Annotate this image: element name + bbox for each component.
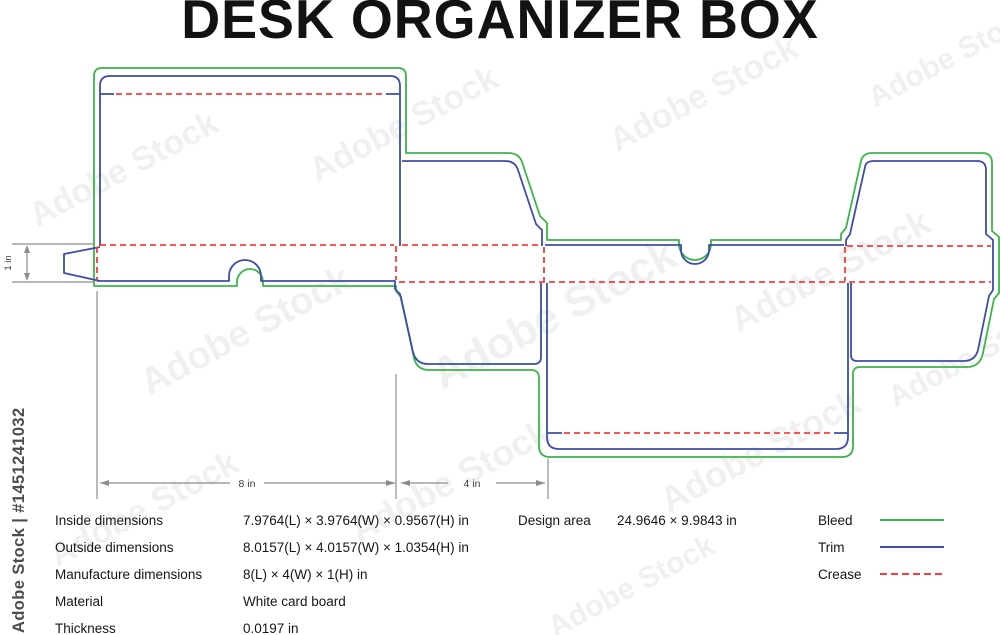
legend-label-trim: Trim xyxy=(818,540,845,555)
stock-id-label: Adobe Stock | #1451241032 xyxy=(10,407,29,633)
spec-value: 7.9764(L) × 3.9764(W) × 0.9567(H) in xyxy=(243,513,469,528)
spec-value: White card board xyxy=(243,594,346,609)
spec-label: Outside dimensions xyxy=(55,540,174,555)
legend-label-bleed: Bleed xyxy=(818,513,853,528)
spec-label: Thickness xyxy=(55,621,116,635)
spec-label: Manufacture dimensions xyxy=(55,567,202,582)
dimension-label-height: 1 in xyxy=(3,255,14,270)
legend-swatch-bleed xyxy=(880,516,944,524)
dimension-lines xyxy=(12,244,548,499)
legend-label-crease: Crease xyxy=(818,567,862,582)
spec-value: 0.0197 in xyxy=(243,621,299,635)
dimension-label-width: 4 in xyxy=(464,478,481,490)
spec-value: 8.0157(L) × 4.0157(W) × 1.0354(H) in xyxy=(243,540,469,555)
legend-swatch-crease xyxy=(880,570,944,578)
spec-label: Material xyxy=(55,594,103,609)
dimension-label-length: 8 in xyxy=(239,478,256,490)
spec-label: Inside dimensions xyxy=(55,513,163,528)
design-area-value: 24.9646 × 9.9843 in xyxy=(617,513,737,528)
crease-lines xyxy=(97,94,991,433)
design-area-label: Design area xyxy=(518,513,591,528)
spec-value: 8(L) × 4(W) × 1(H) in xyxy=(243,567,368,582)
legend-swatch-trim xyxy=(880,543,944,551)
dieline-template-page: Adobe Stock Adobe Stock Adobe Stock Adob… xyxy=(0,0,1000,635)
